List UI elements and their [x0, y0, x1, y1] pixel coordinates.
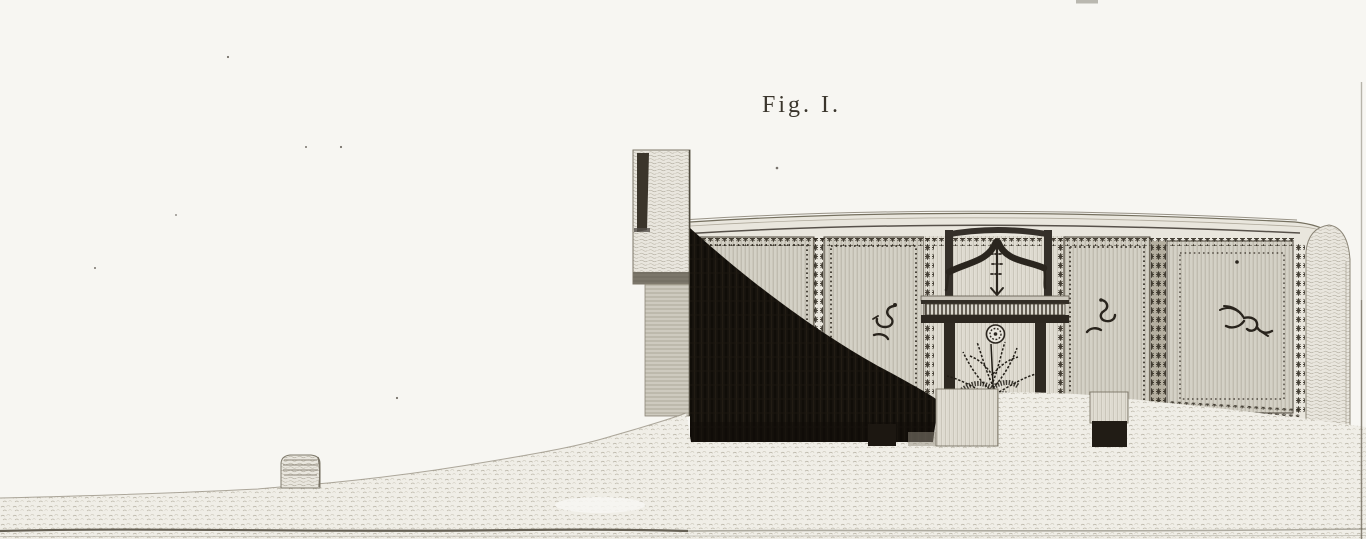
dentil-course [925, 304, 1065, 315]
pier-recess-slot [637, 153, 649, 232]
dark-step-block [868, 424, 896, 446]
plate-canvas: Fig. I. [0, 0, 1366, 539]
wall-right-end-cap [1306, 225, 1350, 432]
rosette-medallion [987, 325, 1005, 343]
pier-lower-shaft [645, 284, 690, 416]
figure-caption: Fig. I. [762, 92, 841, 118]
mound-light-patch [555, 497, 645, 513]
engraved-plate: Fig. I. [0, 0, 1366, 539]
door-base-block [936, 389, 998, 446]
excavation-hole [1092, 421, 1127, 447]
panel-fleck [1235, 260, 1239, 264]
right-base-block [1090, 392, 1128, 423]
gray-step [908, 432, 938, 446]
door-lintel [921, 296, 1069, 323]
stone-stump [281, 455, 320, 488]
